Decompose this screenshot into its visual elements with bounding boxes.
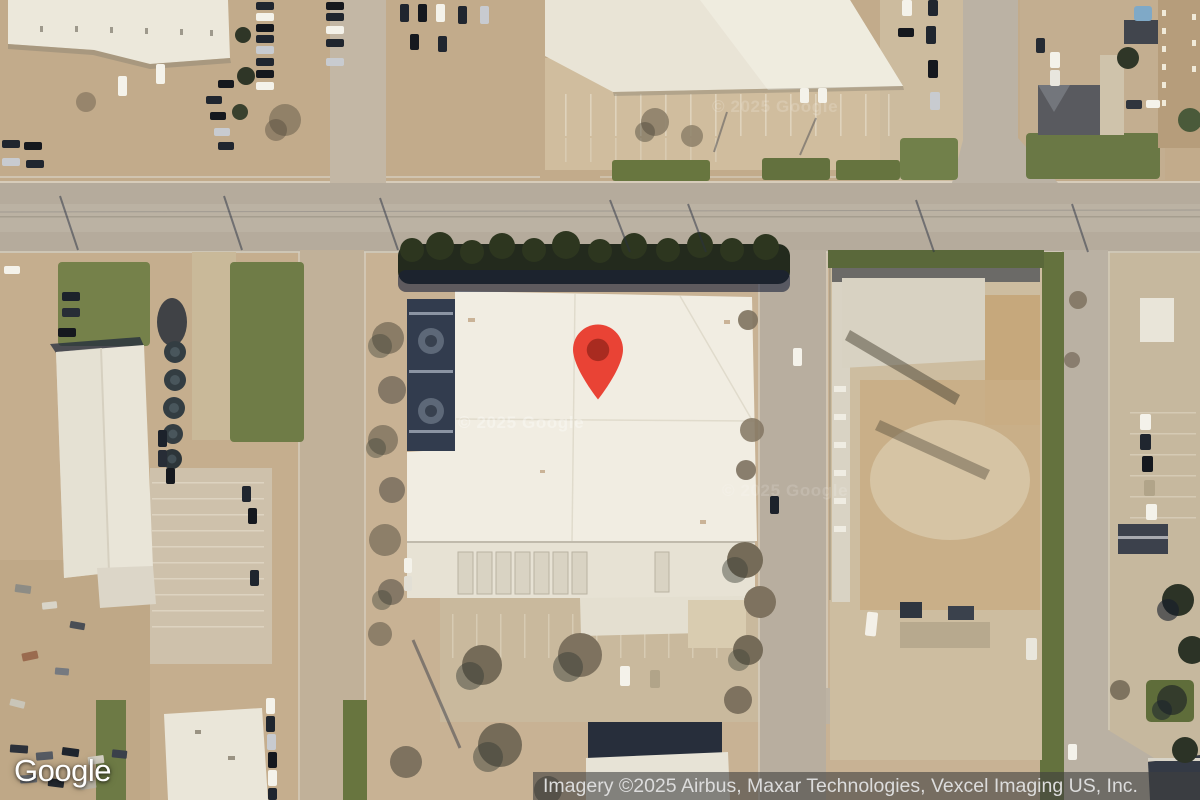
map-canvas[interactable]: © 2025 Google © 2025 Google © 2025 Googl… — [0, 0, 1200, 800]
loading-bays — [458, 552, 587, 594]
warehouse-rooftop-equipment — [407, 299, 455, 451]
gravel-yard — [828, 250, 1044, 760]
map-pin-body[interactable] — [573, 325, 623, 400]
building-bottom-left — [164, 708, 268, 800]
map-pin-core — [587, 339, 610, 362]
imagery-attribution: Imagery ©2025 Airbus, Maxar Technologies… — [533, 772, 1200, 800]
map-pin-icon[interactable] — [573, 323, 623, 401]
building-bottom-center-dark — [588, 722, 722, 758]
attribution-text: Imagery ©2025 Airbus, Maxar Technologies… — [543, 775, 1138, 798]
google-logo[interactable]: Google — [14, 753, 111, 789]
